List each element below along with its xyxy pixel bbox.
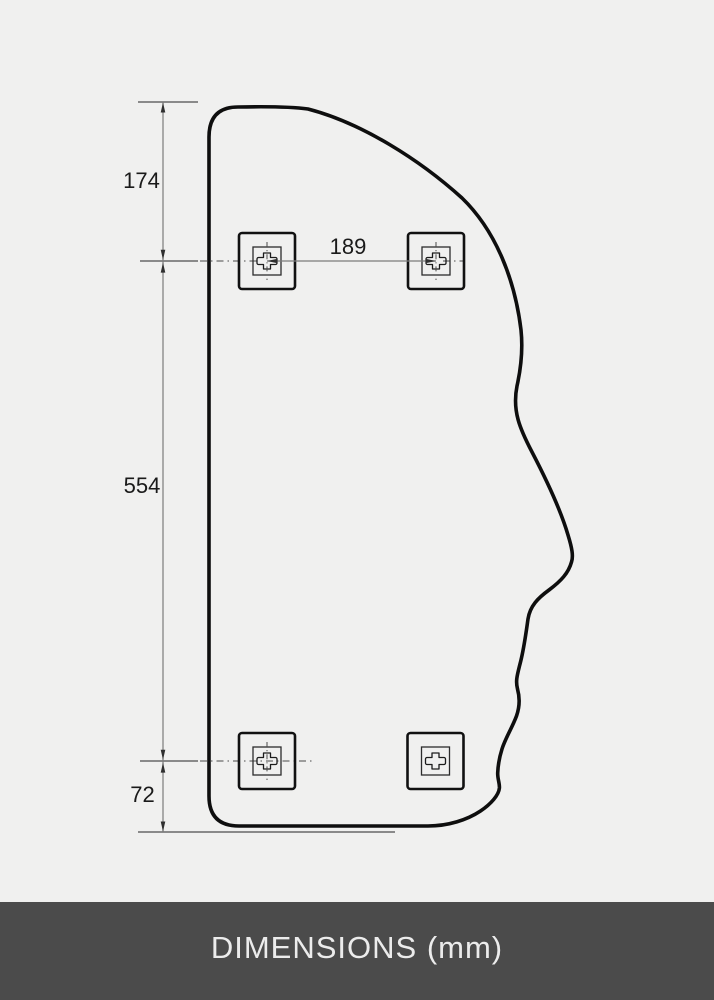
extension-lines [138,102,395,832]
footer-title: DIMENSIONS (mm) [211,930,503,966]
dimension-label-top-offset: 174 [123,168,160,193]
footer-bar: DIMENSIONS (mm) [0,902,714,1000]
dimension-label-bottom-offset: 72 [130,782,154,807]
dimension-label-bracket-spacing: 189 [330,234,367,259]
bracket-center-lines [200,261,463,761]
mounting-brackets [239,233,464,789]
product-dimensions-page: 174 554 72 189 DIMENSIONS (mm) [0,0,714,1000]
dimension-label-body-height: 554 [124,473,161,498]
dimension-drawing-svg: 174 554 72 189 [0,0,714,902]
mirror-outline [209,107,572,826]
mounting-bracket-bottom-right-icon [408,733,464,789]
dimension-arrows [161,103,436,832]
technical-drawing: 174 554 72 189 [0,0,714,902]
